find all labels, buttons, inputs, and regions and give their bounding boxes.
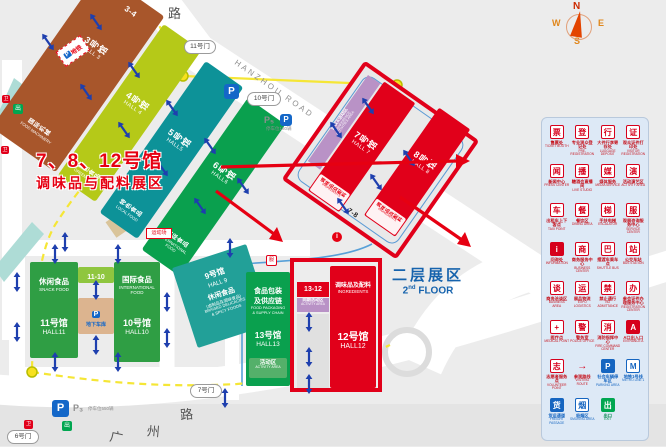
- sports-field-tag: 运动场: [146, 228, 172, 239]
- hall-10: 国际食品 INTERNATIONAL FOOD 10号馆 HALL10: [114, 262, 160, 362]
- legend-label-en: NO ADMITTANCE: [595, 301, 620, 308]
- legend-icon-15: 站: [626, 242, 640, 256]
- legend-label-en: POLICE OFFICE: [570, 340, 594, 344]
- legend-icon-4: 闻: [550, 164, 564, 178]
- link-13-12-label: 13-12: [304, 286, 322, 293]
- legend-item: P社会车辆停车区PARKING AREA: [595, 359, 621, 394]
- legend-icon-3: 证: [626, 125, 640, 139]
- second-floor-zh: 二层展区: [392, 264, 464, 285]
- legend-label-en: TICKET BOOTH: [545, 145, 569, 149]
- legend-icon-6: 媒: [601, 164, 615, 178]
- legend-item: 演活动演艺区ACTIVITY AREA: [621, 164, 647, 199]
- hall-4-label: 4号馆HALL 4: [114, 85, 158, 123]
- legend-icon-23: A: [626, 320, 640, 334]
- legend-item: 消消防指挥中心FIRE COMMAND CENTER: [595, 320, 621, 355]
- underground-garage: P 地下车库: [78, 298, 114, 334]
- info-icon: i: [332, 232, 342, 242]
- legend-label-en: BUSINESS CENTER: [570, 267, 595, 274]
- hall-10-en: HALL10: [114, 329, 160, 336]
- legend-item: 烟吸烟区SMOKING AREA: [570, 398, 596, 433]
- legend-item: +医疗点MEDICAL POINT: [544, 320, 570, 355]
- guangzhou-road-char3: 路: [179, 403, 194, 423]
- legend-item: i问询处INFORMATION: [544, 242, 570, 277]
- hall-3-4-link: 3-4: [112, 0, 150, 27]
- legend-label-en: FIRE COMMAND CENTER: [595, 345, 620, 352]
- legend-icon-30: 出: [601, 398, 615, 412]
- legend-item: 登专业观众登记处PRE-REGISTRATION: [570, 125, 596, 160]
- hall-8-label: 8号馆HALL 8: [405, 147, 442, 180]
- legend-icon-25: →: [575, 359, 589, 373]
- restroom-icon: 卫: [1, 146, 9, 154]
- restroom-icon: 卫: [24, 420, 33, 429]
- second-floor-en: 2nd FLOOR: [392, 285, 464, 296]
- legend-label-en: MEDIA SERVICE: [595, 184, 620, 188]
- gate-10: 10号门: [247, 92, 281, 106]
- hall-11-name: 11号馆: [30, 316, 78, 329]
- activity-area-en: ACTIVITY AREA: [249, 366, 287, 370]
- parking-icon: P: [224, 84, 239, 99]
- legend-item: 办参会证件办理服务中心REGISTRATION CENTER: [621, 281, 647, 316]
- legend-label-en: INFORMATION: [546, 262, 568, 266]
- legend-item: 谈商务洽谈区BUSINESS AREA: [544, 281, 570, 316]
- hall-10-category-zh: 国际食品: [114, 274, 160, 285]
- hall-13: 食品包装 及供应链 FOOD PACKAGING & SUPPLY CHAIN …: [246, 272, 290, 386]
- parking-icon: P: [52, 400, 69, 417]
- hall-7-category: 调味品及配料INGREDIENTS: [311, 175, 349, 209]
- legend-item: 服观展咨询服务中心SERVICE CENTER: [621, 203, 647, 238]
- compass-w: W: [552, 18, 561, 28]
- gate-7: 7号门: [190, 384, 222, 398]
- hall-12-corridor: [297, 314, 329, 388]
- legend-icon-21: 警: [575, 320, 589, 334]
- exit-icon: 出: [62, 421, 72, 431]
- gate-11: 11号门: [184, 40, 216, 54]
- hall-12-en: HALL12: [330, 343, 376, 350]
- parking-p5-label: P₅: [264, 115, 274, 125]
- legend-label-en: LIVE STUDIO: [572, 189, 592, 193]
- parking-icon: P: [92, 311, 101, 318]
- legend-icon-1: 登: [575, 125, 589, 139]
- legend-icon-18: 禁: [601, 281, 615, 295]
- hall-10-name: 10号馆: [114, 316, 160, 329]
- hall-12-category-en: INGREDIENTS: [330, 289, 376, 294]
- legend-icon-5: 播: [575, 164, 589, 178]
- legend-label-en: FREIGHT PASSAGE: [544, 418, 569, 425]
- legend-item: 证观众证件打印处VISITOR REGISTRATION: [621, 125, 647, 160]
- legend-item: 志志愿者服务点VOLUNTEER POINT: [544, 359, 570, 394]
- legend-icon-11: 服: [626, 203, 640, 217]
- hall-6-label: 6号馆HALL6: [201, 155, 245, 193]
- legend-item: 媒媒体服务MEDIA SERVICE: [595, 164, 621, 199]
- legend-icon-29: 烟: [575, 398, 589, 412]
- legend-item: 运展品物流EXPO LOGISTICS: [570, 281, 596, 316]
- legend-label-en: PRE-REGISTRATION: [570, 150, 595, 157]
- legend-label-en: SERVICE CENTER: [621, 228, 646, 235]
- legend-label-en: BUS STATION: [623, 262, 644, 266]
- hall-13-name: 13号馆: [246, 329, 290, 341]
- hall-13-category-zh1: 食品包装: [246, 286, 290, 296]
- legend-item: 闻新闻中心PRESS CENTER: [544, 164, 570, 199]
- legend-icon-0: 票: [550, 125, 564, 139]
- legend-label-en: VOLUNTEER POINT: [544, 384, 569, 391]
- legend-item: 播糖酒会直播间LIVE STUDIO: [570, 164, 596, 199]
- route-node: [27, 367, 37, 377]
- hall-10-category-en2: FOOD: [114, 290, 160, 295]
- hall-12-category-zh: 调味品及配料: [330, 280, 376, 289]
- activity-1312-area: 同期活动区 ACTIVITY AREA: [297, 298, 329, 312]
- legend-label-en: VISITING ROUTE: [570, 379, 595, 386]
- legend-label-en: METRO LINE 1: [622, 379, 644, 383]
- legend-item: 梯手扶电梯ESCALATOR: [595, 203, 621, 238]
- legend-item: 警警务室POLICE OFFICE: [570, 320, 596, 355]
- activity-1312-en: ACTIVITY AREA: [297, 303, 329, 307]
- legend-icon-13: 商: [575, 242, 589, 256]
- legend-label-en: PARKING AREA: [596, 384, 620, 388]
- legend-icon-22: 消: [601, 320, 615, 334]
- legend-item: 餐餐饮区DINING AREA: [570, 203, 596, 238]
- legend-icon-7: 演: [626, 164, 640, 178]
- north-road-label: 路: [168, 3, 181, 22]
- hall-11-category-zh: 休闲食品: [30, 276, 78, 287]
- legend-item: AA口出入口ENTRANCE A: [621, 320, 647, 355]
- annotation-line2: 调味品与配料展区: [36, 173, 164, 193]
- legend-label-en: EXPO LOGISTICS: [570, 301, 595, 308]
- legend-panel: 票售票处TICKET BOOTH登专业观众登记处PRE-REGISTRATION…: [541, 117, 649, 441]
- legend-item: →参观路线VISITING ROUTE: [570, 359, 596, 394]
- legend-item: M地铁1号线METRO LINE 1: [621, 359, 647, 394]
- legend-label-en: SMOKING AREA: [570, 418, 594, 422]
- guangzhou-road-char2: 州: [146, 420, 161, 440]
- hall-11-category-en: SNACK FOOD: [30, 287, 78, 292]
- zone-12-highlight: 13-12 同期活动区 ACTIVITY AREA 调味品及配料 INGREDI…: [290, 258, 382, 392]
- legend-icon-14: 巴: [601, 242, 615, 256]
- parking-p3-note: 停车位550辆: [88, 406, 114, 412]
- parking-p5-note: 停车位180辆: [266, 126, 292, 132]
- restroom-icon: 卫: [2, 95, 10, 103]
- compass: N W E S: [552, 2, 608, 48]
- legend-icon-8: 车: [550, 203, 564, 217]
- hall-12: 调味品及配料 INGREDIENTS 12号馆 HALL12: [330, 266, 376, 388]
- legend-item: 货货运通道FREIGHT PASSAGE: [544, 398, 570, 433]
- hall-13-activity-area: 活动区 ACTIVITY AREA: [249, 358, 287, 378]
- hall-12-name: 12号馆: [330, 328, 376, 343]
- legend-label-en: BUSINESS AREA: [544, 301, 569, 308]
- legend-item: 票售票处TICKET BOOTH: [544, 125, 570, 160]
- hall-11-10-link: 11-10: [78, 267, 114, 283]
- legend-label-en: TAXI POINT: [548, 228, 565, 232]
- hall-11-en: HALL11: [30, 329, 78, 336]
- legend-label-en: MEDICAL POINT: [544, 340, 569, 344]
- legend-icon-9: 餐: [575, 203, 589, 217]
- legend-label-en: ACTIVITY AREA: [621, 184, 645, 188]
- hall-13-category-en1: FOOD PACKAGING: [246, 306, 290, 311]
- hall-11: 休闲食品 SNACK FOOD 11号馆 HALL11: [30, 262, 78, 358]
- legend-icon-16: 谈: [550, 281, 564, 295]
- legend-label-en: VISITOR REGISTRATION: [621, 150, 646, 157]
- gate-6: 6号门: [7, 430, 39, 444]
- legend-item: 商商务服务中心BUSINESS CENTER: [570, 242, 596, 277]
- legend-label-en: SHUTTLE BUS: [597, 267, 619, 271]
- legend-icon-20: +: [550, 320, 564, 334]
- legend-item: 禁禁止通行NO ADMITTANCE: [595, 281, 621, 316]
- exit-icon: 出: [13, 104, 23, 114]
- legend-icon-2: 行: [601, 125, 615, 139]
- underground-garage-label: 地下车库: [78, 321, 114, 328]
- hall-7-label: 7号馆HALL 7: [345, 127, 382, 160]
- service-icon: 服: [266, 255, 277, 266]
- legend-label-en: REGISTRATION CENTER: [621, 306, 646, 313]
- hall-5-category: 特色食品LOCAL FOOD: [108, 194, 149, 227]
- legend-item: 行大件行李寄存处LUGGAGE DEPOSIT: [595, 125, 621, 160]
- hall-13-category-en2: & SUPPLY CHAIN: [246, 311, 290, 316]
- parking-icon: P: [280, 114, 292, 126]
- legend-label-en: LUGGAGE DEPOSIT: [595, 150, 620, 157]
- legend-label-en: DINING AREA: [572, 223, 593, 227]
- legend-label-en: ENTRANCE A: [623, 340, 643, 344]
- legend-icon-26: P: [601, 359, 615, 373]
- parking-p3-label: P₃: [73, 403, 83, 413]
- legend-label-en: ESCALATOR: [598, 223, 617, 227]
- hall-13-en: HALL13: [246, 341, 290, 348]
- legend-icon-28: 货: [550, 398, 564, 412]
- legend-grid: 票售票处TICKET BOOTH登专业观众登记处PRE-REGISTRATION…: [542, 118, 648, 435]
- legend-item: 车出租车上下客点TAXI POINT: [544, 203, 570, 238]
- legend-item: 巴摆渡车乘车点SHUTTLE BUS: [595, 242, 621, 277]
- legend-icon-17: 运: [575, 281, 589, 295]
- second-floor-note: 二层展区 2nd FLOOR: [392, 264, 464, 296]
- annotation-line1: 7、8、12号馆: [36, 146, 164, 173]
- link-11-10-label: 11-10: [87, 274, 105, 281]
- legend-icon-24: 志: [550, 359, 564, 373]
- legend-label-en: PRESS CENTER: [544, 184, 569, 188]
- hall-13-12-link: 13-12: [297, 282, 329, 297]
- legend-label-en: EXIT: [604, 418, 611, 422]
- legend-item: 出出口EXIT: [595, 398, 621, 433]
- highlight-annotation: 7、8、12号馆 调味品与配料展区: [36, 146, 164, 193]
- legend-item: 站公交车站BUS STATION: [621, 242, 647, 277]
- venue-map: { "annotation":{"line1":"7、8、12号馆","line…: [0, 0, 666, 446]
- legend-icon-19: 办: [626, 281, 640, 295]
- hall-13-category-zh2: 及供应链: [246, 296, 290, 306]
- legend-icon-12: i: [550, 242, 564, 256]
- compass-e: E: [598, 18, 604, 28]
- legend-icon-27: M: [626, 359, 640, 373]
- legend-icon-10: 梯: [601, 203, 615, 217]
